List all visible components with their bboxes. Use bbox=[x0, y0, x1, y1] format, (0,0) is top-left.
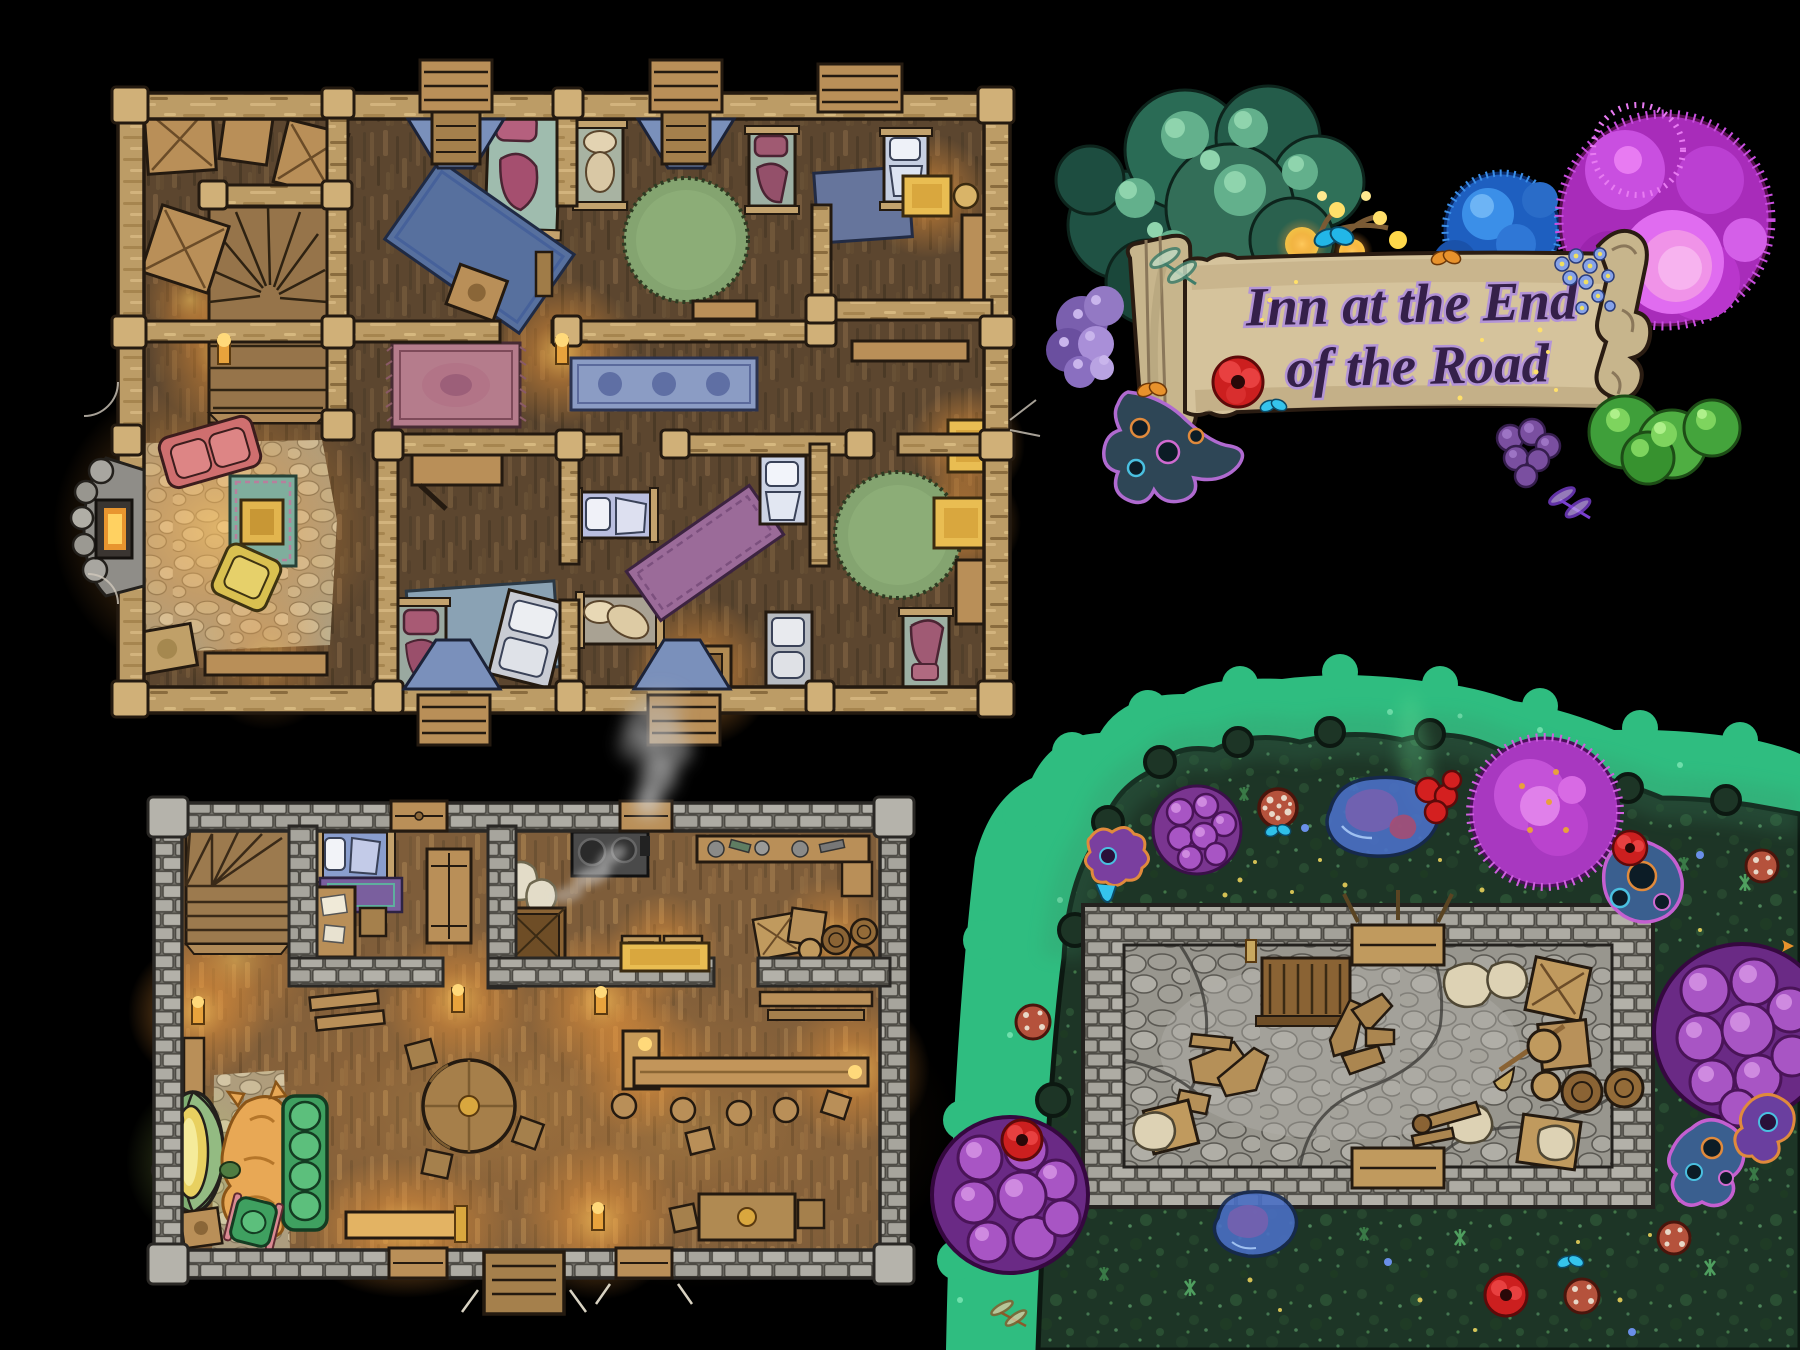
svg-text:of the Road: of the Road bbox=[1286, 332, 1552, 399]
svg-text:Inn at the End: Inn at the End bbox=[1244, 270, 1579, 338]
